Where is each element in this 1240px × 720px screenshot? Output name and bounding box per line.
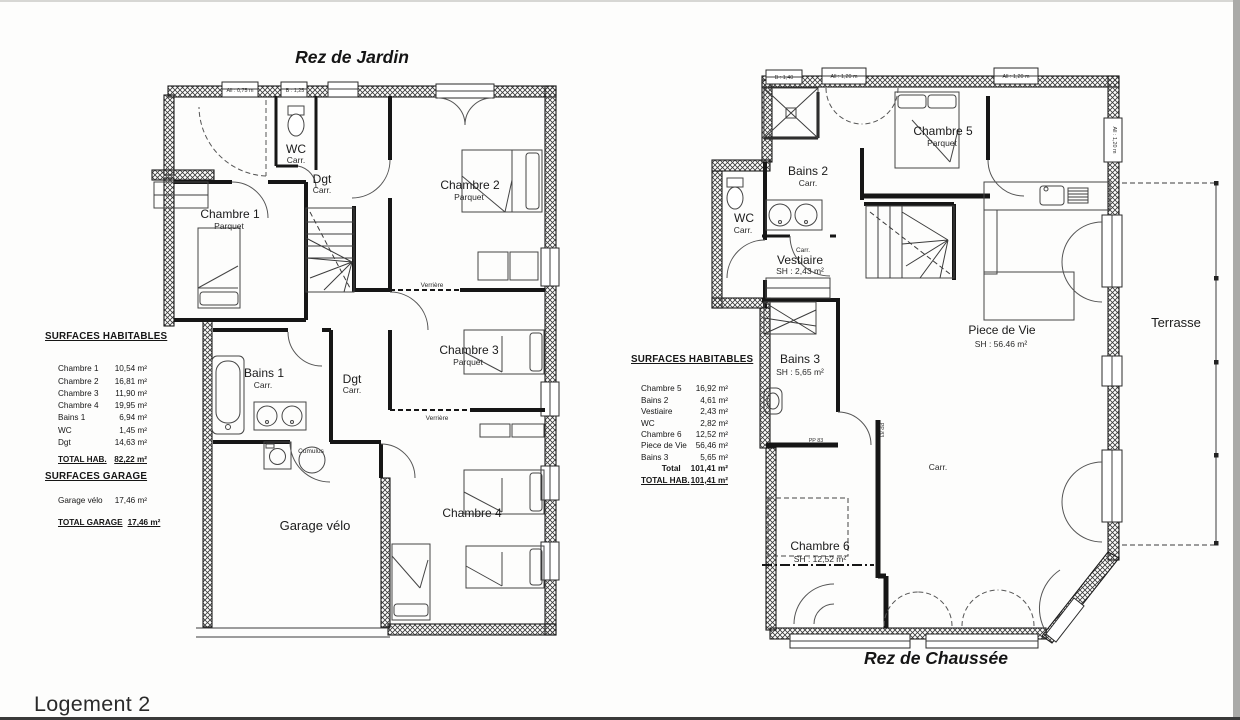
floor-label-carr: Carr. [929,462,947,472]
room-labels: Rez de Chaussée B : 1,40 All : 1,20 m Al… [734,74,1201,668]
logement-label: Logement 2 [34,692,151,717]
room-label-chambre-3: Chambre 3 [439,343,499,357]
total-hab-row: TOTAL HAB.101,41 m² [641,475,728,486]
window-label: B : 1,40 [775,75,794,81]
svg-text:SH : 12,52 m²: SH : 12,52 m² [794,554,847,564]
window-label: All : 1,20 m [831,74,858,80]
table-row: Chambre 516,92 m² [641,383,728,394]
table-heading: SURFACES HABITABLES [631,354,753,365]
room-label-piece-de-vie: Piece de Vie [968,323,1035,337]
room-label-chambre-6: Chambre 6 [790,539,850,553]
closet [480,424,544,437]
plan-title: Rez de Chaussée [864,648,1008,668]
plan-title: Rez de Jardin [295,47,409,67]
garage-table-heading: SURFACES GARAGE [45,471,167,483]
bed [392,544,430,620]
island-table [984,272,1074,320]
bed [198,228,240,308]
floor-plan-drawing: Rez de Jardin All : 0,75 m B : 1,25 WC C… [0,0,1240,720]
svg-text:Carr.: Carr. [343,385,361,395]
room-label-garage: Garage vélo [280,518,351,533]
room-label-vestiaire: Vestiaire [777,253,823,267]
double-sink [254,402,306,430]
table-row: Garage vélo17,46 m² [58,495,147,507]
room-label-wc: WC [734,211,754,225]
svg-text:SH : 56.46 m²: SH : 56.46 m² [975,339,1028,349]
window-label: All : 0,75 m [227,88,254,94]
closet [478,252,538,280]
total-hab-row: TOTAL HAB.82,22 m² [58,454,147,466]
subtotal-row: Total101,41 m² [641,463,728,474]
table-row: Vestiaire2,43 m² [641,406,728,417]
washing-machine [264,442,291,469]
room-label-dgt: Dgt [343,372,362,386]
table-row: Bains 24,61 m² [641,395,728,406]
svg-text:Parquet: Parquet [214,221,244,231]
total-garage-row: TOTAL GARAGE17,46 m² [58,517,167,529]
bed [466,546,544,588]
cumulus-label: Cumulus [298,448,324,455]
window-label: All : 1,20 m [1111,127,1117,154]
table-row: Bains 16,94 m² [58,412,147,424]
fixtures [727,88,1110,556]
room-label-chambre-2: Chambre 2 [440,178,500,192]
room-label-wc: WC [286,142,306,156]
garden-surface-table: SURFACES HABITABLES Chambre 110,54 m² Ch… [45,331,167,530]
ground-surface-table: SURFACES HABITABLES Chambre 516,92 m² Ba… [631,354,753,486]
exterior-walls [152,86,556,637]
exterior-walls [712,76,1119,643]
svg-text:Carr.: Carr. [734,225,752,235]
interior-walls [174,96,545,478]
room-label-bains-3: Bains 3 [780,352,820,366]
room-label-chambre-4: Chambre 4 [442,506,502,520]
svg-text:Parquet: Parquet [454,192,484,202]
staircase [866,206,954,278]
table-row: Chambre 216,81 m² [58,376,147,388]
plan-rez-de-jardin: Rez de Jardin All : 0,75 m B : 1,25 WC C… [152,47,559,637]
scan-edge-right [1233,0,1240,720]
table-row: Chambre 311,90 m² [58,388,147,400]
scanned-floor-plan-page: Rez de Jardin All : 0,75 m B : 1,25 WC C… [0,0,1240,720]
terrasse-label: Terrasse [1151,315,1201,330]
table-row: WC2,82 m² [641,418,728,429]
verriere-label: Verrière [421,282,444,289]
room-label-chambre-1: Chambre 1 [200,207,260,221]
toilet [727,178,743,209]
table-row: Chambre 612,52 m² [641,429,728,440]
svg-text:Parquet: Parquet [453,357,483,367]
svg-text:SH : 5,65 m²: SH : 5,65 m² [776,367,824,377]
table-row: WC1,45 m² [58,425,147,437]
table-row: Bains 35,65 m² [641,452,728,463]
table-row: Piece de Vie56,46 m² [641,440,728,451]
table-row: Chambre 110,54 m² [58,363,147,375]
door-label-pp83: PP 83 [878,423,884,438]
svg-text:Carr.: Carr. [313,185,331,195]
kitchen-counter [984,182,1110,210]
table-heading: SURFACES HABITABLES [45,331,167,343]
double-sink [766,200,822,230]
room-label-chambre-5: Chambre 5 [913,124,973,138]
verriere-label: Verrière [426,415,449,422]
bathtub [212,356,244,434]
terrace-boundary [1122,181,1219,546]
closet [154,182,208,208]
table-row: Chambre 419,95 m² [58,400,147,412]
svg-text:Carr.: Carr. [799,178,817,188]
room-label-dgt: Dgt [313,172,332,186]
shower [764,302,816,334]
svg-text:Carr.: Carr. [254,380,272,390]
plan-rez-de-chaussee: Rez de Chaussée B : 1,40 All : 1,20 m Al… [712,68,1219,668]
table-row: Dgt14,63 m² [58,437,147,449]
window-label: All : 1,20 m [1003,74,1030,80]
room-label-bains-2: Bains 2 [788,164,828,178]
door-label-pp83: PP 83 [809,438,824,444]
toilet [288,106,304,136]
kitchen-counter [984,210,997,274]
svg-text:Carr.: Carr. [287,155,305,165]
svg-text:Parquet: Parquet [927,138,957,148]
staircase [306,208,354,292]
svg-text:SH : 2,43 m²: SH : 2,43 m² [776,266,824,276]
room-label-bains-1: Bains 1 [244,366,284,380]
wardrobe [766,278,830,298]
window-label: B : 1,25 [286,88,305,94]
